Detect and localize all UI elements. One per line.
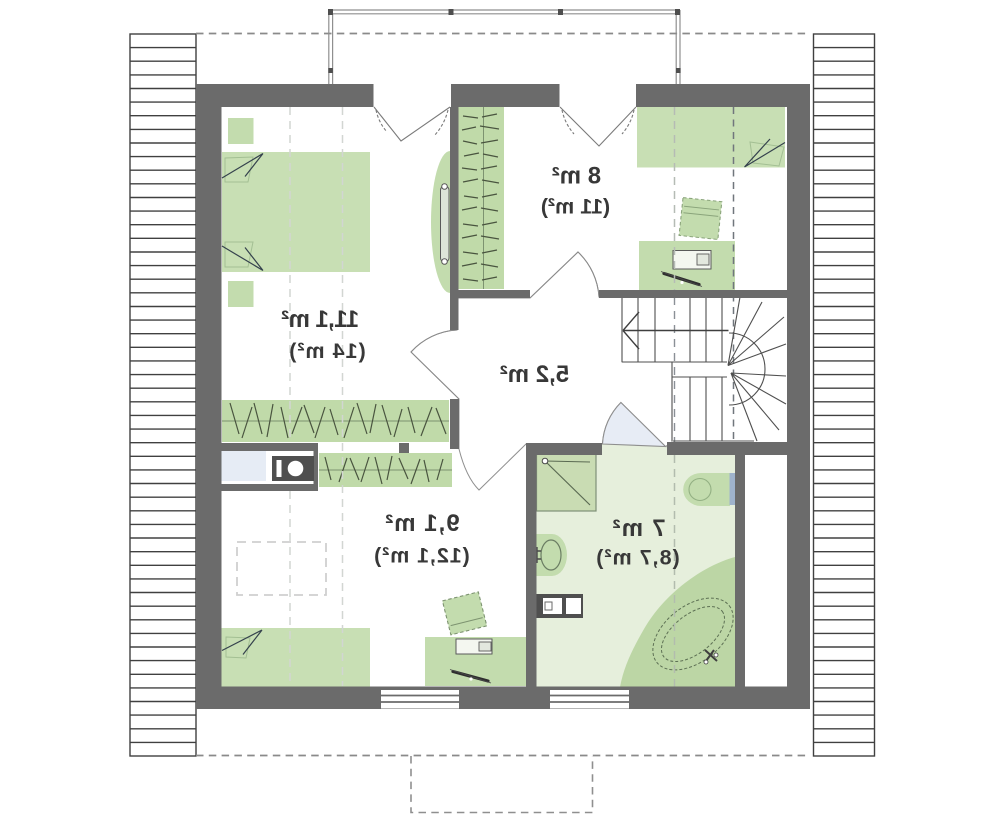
svg-text:(12,1 m²): (12,1 m²)	[373, 544, 470, 568]
svg-text:9,1 m²: 9,1 m²	[384, 510, 459, 537]
svg-text:7 m²: 7 m²	[611, 515, 665, 542]
svg-text:5,2 m²: 5,2 m²	[500, 361, 569, 388]
svg-text:(8,7 m²): (8,7 m²)	[595, 546, 679, 570]
svg-text:8 m²: 8 m²	[552, 163, 601, 190]
svg-text:(11 m²): (11 m²)	[541, 195, 610, 219]
svg-text:(14 m²): (14 m²)	[288, 339, 365, 363]
svg-text:11,1 m²: 11,1 m²	[281, 306, 359, 333]
